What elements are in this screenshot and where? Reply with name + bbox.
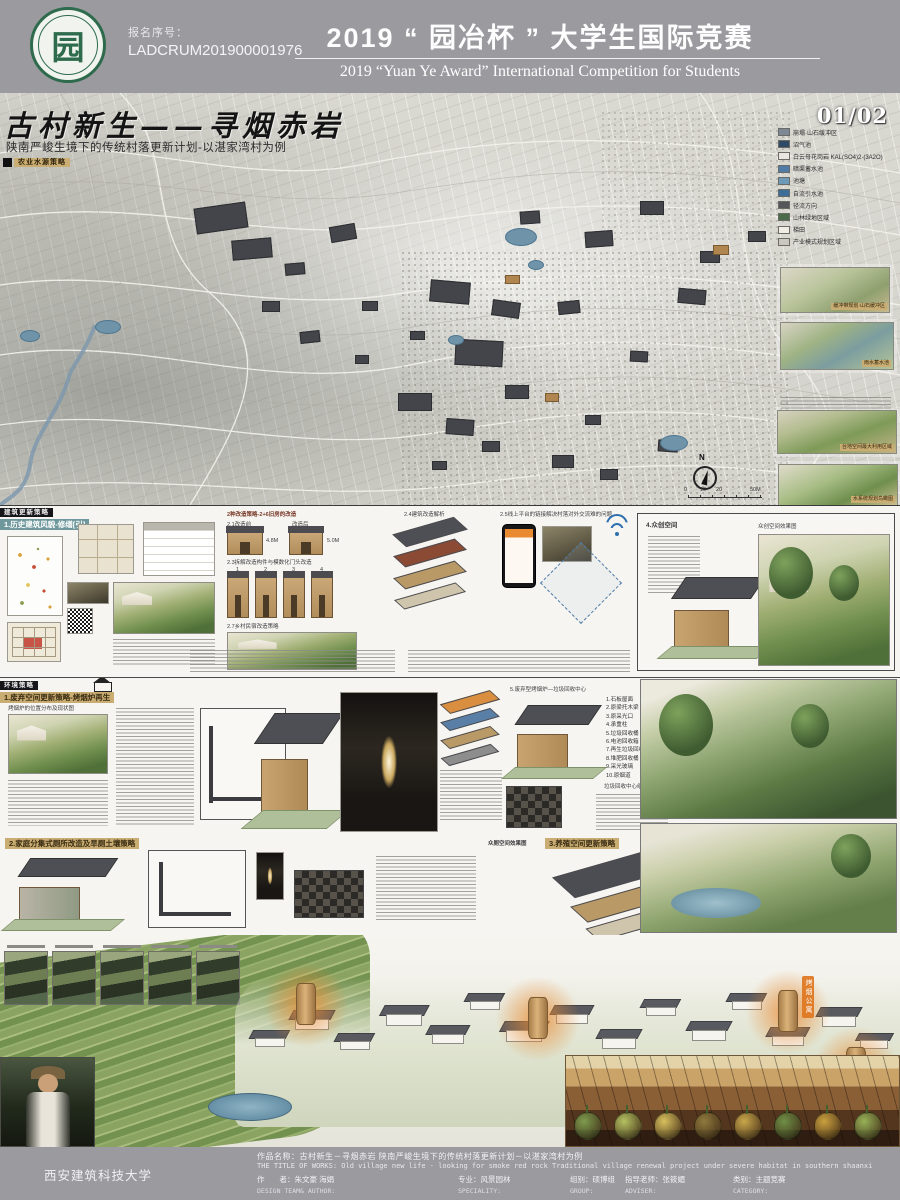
toilet-pipe-section: [148, 850, 246, 928]
legend-swatch: [778, 177, 790, 185]
legend-swatch: [778, 140, 790, 148]
facade-after: [289, 531, 323, 555]
map-building: [285, 262, 306, 276]
kiln-exploded-axon: [252, 706, 338, 824]
legend-label: 沼气池: [793, 140, 811, 149]
legend-swatch: [778, 128, 790, 136]
hut-base: [241, 810, 349, 829]
map-pond: [505, 228, 537, 246]
house-body: [646, 1007, 676, 1016]
subsection-farming-strategy: 3.养殖空间更新策略: [545, 838, 619, 849]
map-legend: 崩塌·山石缓冲区沼气池白云母花岗岩 KAL(SO4)2·(3A2O)暗渠蓄水池池…: [778, 126, 898, 248]
map-building: [482, 441, 500, 452]
maker-space-panel: 4.众创空间 众创空间效果图: [637, 513, 895, 671]
map-building: [630, 351, 649, 363]
facade-variant-drawing: [227, 576, 249, 618]
inset-caption: 台地空间最大利用区域: [840, 444, 894, 451]
map-building: [262, 301, 280, 312]
terrace-photo: [52, 951, 96, 1005]
app-phone-mockup: [502, 524, 536, 588]
legend-swatch: [778, 226, 790, 234]
kiln-cylinder: [528, 997, 548, 1039]
map-inset: 雨水蓄水池: [780, 322, 894, 370]
pond-blob: [671, 888, 761, 918]
footer-credit-en: CATEGORY:: [733, 1187, 786, 1195]
footer-credit-col: 作 者：朱文豪 海娟DESIGN TEAM& AUTHOR:: [257, 1174, 335, 1195]
facade-variant: 3: [283, 568, 307, 620]
village-pond-render: [640, 823, 897, 933]
map-building: [520, 210, 541, 224]
crop-icon: [774, 1112, 802, 1140]
farmer-torso: [26, 1092, 70, 1147]
legend-label: 产业模式规划区域: [793, 237, 841, 246]
legend-swatch: [778, 238, 790, 246]
house-body: [340, 1041, 370, 1050]
legend-label: 暗渠蓄水池: [793, 164, 823, 173]
tag-square-icon: [3, 158, 12, 167]
tree-blob: [831, 834, 871, 878]
digging-photo: [256, 852, 284, 900]
legend-swatch: [778, 165, 790, 173]
legend-label: 径流方向: [793, 201, 817, 210]
inset-caption: 水系统规划鸟瞰图: [851, 496, 895, 503]
facade-variations-row: 1234: [227, 568, 347, 620]
registration-label: 报名序号：: [128, 24, 188, 40]
soil-section-diagram: [565, 1055, 900, 1147]
footer-credit-cn: 类别：主题竞赛: [733, 1174, 786, 1185]
competition-logo: 园: [30, 7, 106, 83]
competition-title-en: 2019 “Yuan Ye Award” International Compe…: [270, 63, 810, 81]
tree-blob: [769, 547, 813, 599]
legend-item: 暗渠蓄水池: [778, 163, 898, 175]
scale-tick: 0: [684, 487, 687, 493]
highlight-plan-diagram: [7, 622, 61, 662]
legend-item: 池塘: [778, 175, 898, 187]
map-building: [398, 393, 432, 411]
page-number: 01/02: [817, 103, 888, 128]
hut-roof: [515, 705, 602, 725]
hatch-pattern-region-2: [600, 110, 790, 242]
legend-swatch: [778, 201, 790, 209]
kiln-cylinder: [296, 983, 316, 1025]
map-inset: 台地空间最大利用区域: [777, 410, 897, 454]
village-house: [432, 1025, 464, 1044]
map-building: [600, 469, 618, 480]
village-panorama: 烤烟公寓: [0, 935, 900, 1147]
footer-credit-col: 组别：硕博组GROUP:: [570, 1174, 615, 1195]
map-building: [362, 301, 378, 311]
facade-variant-drawing: [283, 576, 305, 618]
subsection-abandoned-space: 1.废弃空间更新策略-烤烟炉再生: [0, 692, 114, 703]
map-pond: [448, 335, 464, 345]
kiln-label: 烤烟公寓: [802, 976, 814, 1018]
section-bar-environment: 环境策略: [0, 681, 38, 690]
kiln-distribution-caption: 烤烟炉的位置分布及现状图: [8, 706, 74, 713]
footer-credit-en: GROUP:: [570, 1187, 615, 1195]
crop-icon: [734, 1112, 762, 1140]
map-building: [713, 245, 729, 255]
kiln-cylinder: [778, 990, 798, 1032]
map-building: [584, 230, 613, 248]
competition-title-cn: 2019 “ 园冶杯 ” 大学生国际竞赛: [270, 16, 810, 55]
terrace-pond: [208, 1093, 292, 1121]
footer-credit-cn: 指导老师：张筱媚: [625, 1174, 685, 1185]
section-architecture-renewal: 建筑更新策略 1.历史建筑风貌-修缮[引] 2种改造策略-2+6旧房的改造 2.…: [0, 505, 900, 678]
crop-icon: [614, 1112, 642, 1140]
paragraph-text-block: [408, 650, 630, 672]
hut-roof: [254, 713, 343, 744]
facade-variant: 2: [255, 568, 279, 620]
crop-icon: [574, 1112, 602, 1140]
paragraph-text-block: [376, 856, 476, 920]
paragraph-text-block: [8, 780, 108, 826]
renovation-info-table: [143, 522, 215, 576]
hut-base: [1, 919, 125, 931]
legend-item: 产业模式规划区域: [778, 236, 898, 248]
maker-space-render: [758, 534, 890, 666]
height-dimension-2: 5.0M: [327, 538, 339, 545]
footer-credit-en: ADVISER:: [625, 1187, 685, 1195]
legend-item: 山林绿地区域: [778, 211, 898, 223]
footer-credit-en: DESIGN TEAM& AUTHOR:: [257, 1187, 335, 1195]
terrace-photo: [196, 951, 240, 1005]
legend-item: 自流引水池: [778, 187, 898, 199]
terrace-photo: [100, 951, 144, 1005]
map-building: [677, 288, 706, 305]
terrace-photo: [4, 951, 48, 1005]
map-building: [505, 385, 529, 399]
map-building: [355, 355, 369, 364]
legend-swatch: [778, 152, 790, 160]
crop-icon: [654, 1112, 682, 1140]
village-house: [646, 999, 676, 1016]
map-pond: [660, 435, 688, 451]
legend-item: 白云母花岗岩 KAL(SO4)2·(3A2O): [778, 150, 898, 162]
toilet-hut-axon: [8, 854, 118, 928]
legend-item: 梯田: [778, 224, 898, 236]
hut-roof: [671, 577, 766, 599]
courtyard-plan-diagram: [78, 524, 134, 574]
app-screen: [505, 529, 533, 583]
footer-credit-en: SPECIALITY:: [458, 1187, 511, 1195]
subsection-toilet-strategy: 2.家庭分集式厕所改造及旱厕土壤策略: [5, 838, 139, 849]
tree-blob: [659, 694, 713, 756]
section-bar-architecture: 建筑更新策略: [0, 508, 53, 517]
legend-item: 径流方向: [778, 199, 898, 211]
paragraph-text-block: [190, 650, 395, 672]
university-name: 西安建筑科技大学: [38, 1165, 158, 1184]
terrace-photo: [148, 951, 192, 1005]
maker-space-label: 4.众创空间: [646, 522, 677, 529]
map-building: [505, 275, 520, 284]
toilet-render-caption: 众厕空间效果图: [488, 841, 527, 848]
village-house: [692, 1021, 726, 1041]
inset-caption: 缓冲带规划·山石缓冲区: [831, 303, 887, 310]
farmer-head: [38, 1074, 58, 1093]
village-house: [602, 1029, 636, 1049]
qr-code: [67, 608, 93, 634]
inset-caption: 雨水蓄水池: [862, 360, 891, 367]
subsection-historic-buildings: 1.历史建筑风貌-修缮[引]: [0, 519, 89, 530]
footer-credit-cn: 作 者：朱文豪 海娟: [257, 1174, 335, 1185]
house-icon: [94, 677, 112, 691]
poster-subtitle: 陕南严峻生境下的传统村落更新计划-以湛家湾村为例: [6, 139, 286, 155]
header-band: 园 报名序号： LADCRUM201900001976 2019 “ 园冶杯 ”…: [0, 0, 900, 93]
header-divider: [295, 58, 820, 59]
farmer-photo: [0, 1057, 95, 1147]
footer-credit-col: 专业：风景园林SPECIALITY:: [458, 1174, 511, 1195]
height-dimension: 4.8M: [266, 538, 278, 545]
competition-poster: 园 报名序号： LADCRUM201900001976 2019 “ 园冶杯 ”…: [0, 0, 900, 1200]
work-title-cn: 作品名称：古村新生－寻烟赤岩 陕南严峻生境下的传统村落更新计划－以湛家湾村为例: [257, 1151, 583, 1162]
map-building: [585, 415, 601, 425]
legend-label: 梯田: [793, 225, 805, 234]
crop-icon: [694, 1112, 722, 1140]
footer-credit-col: 指导老师：张筱媚ADVISER:: [625, 1174, 685, 1195]
legend-swatch: [778, 213, 790, 221]
online-platform-caption: 2.5线上平台的链接解决村落对外交流难的问题: [500, 512, 612, 519]
map-pond: [528, 260, 544, 270]
village-entrance-render: [640, 679, 897, 819]
hut-base: [501, 767, 607, 779]
site-plan-map: 古村新生——寻烟赤岩 陕南严峻生境下的传统村落更新计划-以湛家湾村为例 农业水源…: [0, 93, 900, 505]
scale-tick: 10: [700, 487, 706, 493]
historic-building-distribution-map: [7, 536, 63, 616]
north-label: N: [699, 453, 705, 462]
axon-analysis-caption: 2.4建筑改造解析: [404, 512, 445, 519]
facade-variant-drawing: [255, 576, 277, 618]
map-pond: [95, 320, 121, 334]
courtyard-render: [113, 582, 215, 634]
kiln-distribution-plan: [8, 714, 108, 774]
tree-blob: [791, 704, 829, 748]
facade-variant-drawing: [311, 576, 333, 618]
footer-credit-columns: 作 者：朱文豪 海娟DESIGN TEAM& AUTHOR:专业：风景园林SPE…: [257, 1174, 895, 1196]
map-building: [429, 279, 471, 304]
house-body: [386, 1014, 422, 1026]
footer-credit-col: 类别：主题竞赛CATEGORY:: [733, 1174, 786, 1195]
site-photo: [67, 582, 109, 604]
right-render-column: [640, 679, 897, 933]
facade-before: [227, 531, 263, 555]
house-body: [692, 1030, 726, 1041]
map-building: [557, 300, 580, 315]
recycle-center-caption: 5.废弃型烤烟炉—垃圾回收中心: [510, 687, 586, 694]
legend-item: 沼气池: [778, 138, 898, 150]
hut-base: [656, 646, 772, 659]
facade-modules-caption: 2.3拆解改造构件与模数化门头改造: [227, 560, 312, 567]
footer-credit-cn: 专业：风景园林: [458, 1174, 511, 1185]
logo-seal-character: 园: [33, 10, 103, 80]
village-house: [340, 1033, 370, 1050]
paragraph-text-block: [116, 708, 194, 826]
legend-label: 池塘: [793, 176, 805, 185]
map-building: [299, 330, 320, 344]
scale-bar-labels: 0102050M: [684, 487, 774, 495]
legend-label: 崩塌·山石缓冲区: [793, 128, 837, 137]
map-strategy-tag: 农业水源策略: [14, 158, 70, 167]
work-title-en: THE TITLE OF WORKS: Old village new life…: [257, 1162, 872, 1170]
legend-label: 白云母花岗岩 KAL(SO4)2·(3A2O): [793, 152, 883, 161]
map-building: [432, 461, 447, 470]
scale-bar: [688, 497, 762, 498]
scale-tick: 50M: [750, 487, 761, 493]
map-inset: 水系统规划鸟瞰图: [778, 464, 898, 505]
homestay-caption: 2.7乡村民宿改造策略: [227, 624, 279, 631]
legend-label: 自流引水池: [793, 189, 823, 198]
crop-icon: [854, 1112, 882, 1140]
maker-hut-axon: [664, 572, 764, 656]
house-body: [432, 1034, 464, 1044]
map-building: [545, 393, 559, 402]
legend-swatch: [778, 189, 790, 197]
map-inset: 缓冲带规划·山石缓冲区: [780, 267, 890, 313]
village-house: [386, 1005, 422, 1026]
paragraph-text-block: [440, 770, 502, 822]
legend-item: 崩塌·山石缓冲区: [778, 126, 898, 138]
map-building: [640, 201, 664, 215]
house-body: [602, 1038, 636, 1049]
map-building: [231, 237, 273, 260]
scale-tick: 20: [716, 487, 722, 493]
strategies-header: 2种改造策略-2+6旧房的改造: [227, 512, 296, 519]
legend-label: 山林绿地区域: [793, 213, 829, 222]
map-building: [445, 418, 474, 436]
inset-note-text: [781, 397, 891, 409]
facade-variant: 1: [227, 568, 251, 620]
tree-blob: [829, 565, 859, 601]
hut-roof: [17, 858, 118, 877]
footer-credit-cn: 组别：硕博组: [570, 1174, 615, 1185]
maker-space-render-caption: 众创空间效果图: [758, 524, 797, 531]
kiln-interior-photo: [340, 692, 438, 832]
crop-icon: [814, 1112, 842, 1140]
compost-grid-photo: [506, 786, 562, 828]
wifi-icon: [606, 522, 628, 536]
facade-variant: 4: [311, 568, 335, 620]
map-building: [748, 231, 766, 242]
map-building: [552, 455, 574, 468]
compost-trays: [294, 870, 364, 918]
map-building: [410, 331, 425, 340]
recycle-center-axon: [508, 700, 600, 776]
map-pond: [20, 330, 40, 342]
